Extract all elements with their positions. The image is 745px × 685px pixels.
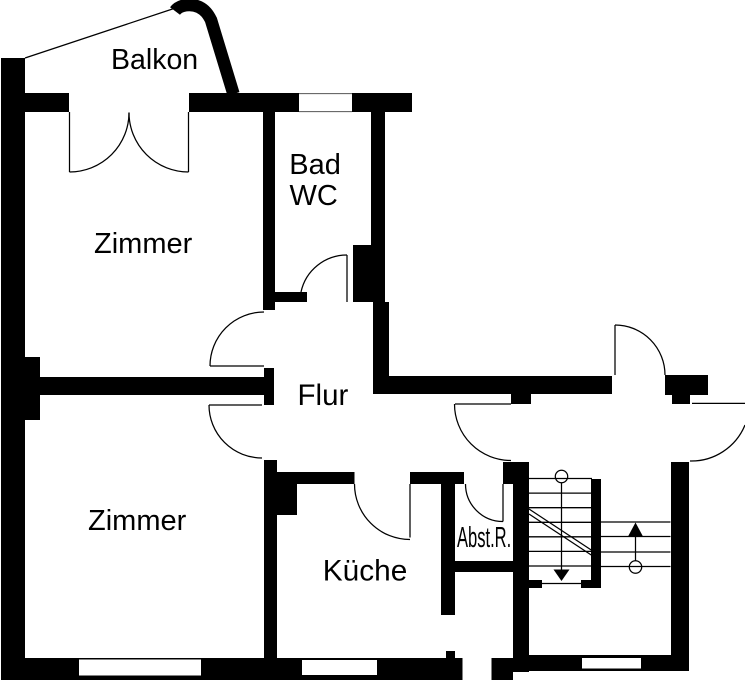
svg-text:Flur: Flur [298,379,349,412]
svg-text:Küche: Küche [323,555,408,588]
svg-text:Zimmer: Zimmer [94,228,193,260]
svg-text:Balkon: Balkon [111,44,198,76]
svg-text:WC: WC [290,180,338,212]
svg-text:Zimmer: Zimmer [88,505,187,537]
svg-text:Abst.R.: Abst.R. [457,522,511,554]
svg-text:Bad: Bad [289,149,341,181]
